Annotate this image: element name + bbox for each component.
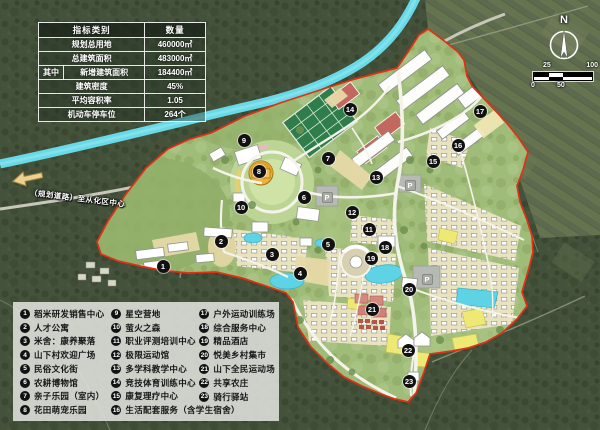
scale-label-50: 50 xyxy=(557,82,565,89)
map-marker-16[interactable]: 16 xyxy=(452,139,465,152)
legend-number-badge: 12 xyxy=(111,350,121,360)
legend-item-20: 20悦美乡村集市 xyxy=(199,348,275,362)
compass-rose-icon xyxy=(538,26,590,66)
scale-bar: 25 100 0 50 xyxy=(531,62,595,94)
legend-item-18: 18综合服务中心 xyxy=(199,321,275,335)
legend-item-6: 6农耕博物馆 xyxy=(20,376,111,390)
compass-north-label: N xyxy=(538,14,590,26)
legend-label: 职业评测培训中心 xyxy=(125,335,195,347)
map-marker-18[interactable]: 18 xyxy=(379,241,392,254)
stats-header-quantity: 数量 xyxy=(145,23,206,38)
stats-value: 1.05 xyxy=(145,94,206,108)
legend-item-23: 23骑行驿站 xyxy=(199,390,275,404)
stats-value: 483000㎡ xyxy=(145,52,206,66)
map-marker-19[interactable]: 19 xyxy=(365,252,378,265)
stats-table: 指标类别 数量 规划总用地 460000㎡ 总建筑面积 483000㎡ 其中 新… xyxy=(38,22,206,122)
legend-label: 民俗文化街 xyxy=(34,363,78,375)
legend-number-badge: 13 xyxy=(111,364,121,374)
legend-number-badge: 20 xyxy=(199,350,209,360)
scale-label-25: 25 xyxy=(543,62,551,69)
legend-number-badge: 22 xyxy=(199,378,209,388)
legend-number-badge: 18 xyxy=(199,323,209,333)
legend-label: 山下全民运动场 xyxy=(213,363,275,375)
stats-prefix: 其中 xyxy=(39,66,64,80)
map-marker-11[interactable]: 11 xyxy=(363,223,376,236)
legend-label: 户外运动训练场 xyxy=(213,308,275,320)
legend-label: 亲子乐园（室内） xyxy=(34,390,104,402)
legend-number-badge: 21 xyxy=(199,364,209,374)
legend-item-13: 13多学科教学中心 xyxy=(111,362,199,376)
legend-column: 9星空营地10萤火之森11职业评测培训中心12极限运动馆13多学科教学中心14竞… xyxy=(111,307,199,417)
legend-label: 农耕博物馆 xyxy=(34,377,78,389)
legend-number-badge: 9 xyxy=(111,309,121,319)
legend-label: 稻米研发销售中心 xyxy=(34,308,104,320)
stats-value: 184400㎡ xyxy=(145,66,206,80)
stats-value: 45% xyxy=(145,80,206,94)
legend-item-9: 9星空营地 xyxy=(111,307,199,321)
legend-label: 米舍：康养聚落 xyxy=(34,335,96,347)
legend-number-badge: 8 xyxy=(20,405,30,415)
stats-row: 规划总用地 460000㎡ xyxy=(39,38,206,52)
legend-number-badge: 6 xyxy=(20,378,30,388)
legend-number-badge: 3 xyxy=(20,336,30,346)
legend-number-badge: 11 xyxy=(111,336,121,346)
map-marker-3[interactable]: 3 xyxy=(266,248,279,261)
map-marker-5[interactable]: 5 xyxy=(322,238,335,251)
legend-item-15: 15康复理疗中心 xyxy=(111,390,199,404)
scale-label-0: 0 xyxy=(531,82,535,89)
legend-item-11: 11职业评测培训中心 xyxy=(111,335,199,349)
legend-number-badge: 1 xyxy=(20,309,30,319)
parking-marker-3[interactable]: P xyxy=(422,274,433,285)
legend-item-16: 16生活配套服务（含学生宿舍） xyxy=(111,403,199,417)
legend-label: 多学科教学中心 xyxy=(125,363,187,375)
legend-label: 综合服务中心 xyxy=(213,322,266,334)
legend-item-4: 4山下村欢迎广场 xyxy=(20,348,111,362)
legend-label: 花田萌宠乐园 xyxy=(34,404,87,416)
legend-label: 山下村欢迎广场 xyxy=(34,349,96,361)
stats-label: 机动车停车位 xyxy=(39,108,145,122)
legend-label: 极限运动馆 xyxy=(125,349,169,361)
stats-row: 建筑密度 45% xyxy=(39,80,206,94)
legend-number-badge: 15 xyxy=(111,391,121,401)
legend-number-badge: 16 xyxy=(111,405,121,415)
stats-header-row: 指标类别 数量 xyxy=(39,23,206,38)
legend-label: 康复理疗中心 xyxy=(125,390,178,402)
site-plan-map: 1234567891011121314151617181920212223PPP… xyxy=(0,0,600,430)
stats-header-category: 指标类别 xyxy=(39,23,145,38)
stats-row: 机动车停车位 264个 xyxy=(39,108,206,122)
legend-number-badge: 4 xyxy=(20,350,30,360)
legend-number-badge: 2 xyxy=(20,323,30,333)
map-marker-1[interactable]: 1 xyxy=(157,260,170,273)
map-marker-21[interactable]: 21 xyxy=(366,303,379,316)
stats-label: 总建筑面积 xyxy=(39,52,145,66)
map-marker-23[interactable]: 23 xyxy=(403,375,416,388)
map-marker-7[interactable]: 7 xyxy=(322,152,335,165)
legend-label: 精品酒店 xyxy=(213,335,248,347)
map-marker-9[interactable]: 9 xyxy=(238,134,251,147)
legend-item-21: 21山下全民运动场 xyxy=(199,362,275,376)
legend-number-badge: 19 xyxy=(199,336,209,346)
legend-label: 共享农庄 xyxy=(213,377,248,389)
legend-label: 骑行驿站 xyxy=(213,391,248,403)
legend-label: 星空营地 xyxy=(125,308,160,320)
map-marker-17[interactable]: 17 xyxy=(474,105,487,118)
map-marker-12[interactable]: 12 xyxy=(346,206,359,219)
legend-column: 1稻米研发销售中心2人才公寓3米舍：康养聚落4山下村欢迎广场5民俗文化街6农耕博… xyxy=(20,307,111,417)
parking-marker-1[interactable]: P xyxy=(322,192,333,203)
map-marker-4[interactable]: 4 xyxy=(294,267,307,280)
legend-item-22: 22共享农庄 xyxy=(199,376,275,390)
legend-item-19: 19精品酒店 xyxy=(199,335,275,349)
stats-value: 460000㎡ xyxy=(145,38,206,52)
map-marker-8[interactable]: 8 xyxy=(253,165,266,178)
scale-bar-graphic xyxy=(533,72,593,81)
stats-row: 平均容积率 1.05 xyxy=(39,94,206,108)
legend-column: 17户外运动训练场18综合服务中心19精品酒店20悦美乡村集市21山下全民运动场… xyxy=(199,307,275,417)
legend-item-5: 5民俗文化街 xyxy=(20,362,111,376)
legend-label: 人才公寓 xyxy=(34,322,69,334)
scale-label-100: 100 xyxy=(586,62,598,69)
map-marker-6[interactable]: 6 xyxy=(298,191,311,204)
legend-item-7: 7亲子乐园（室内） xyxy=(20,390,111,404)
legend-number-badge: 23 xyxy=(199,392,209,402)
legend-number-badge: 17 xyxy=(199,309,209,319)
map-marker-10[interactable]: 10 xyxy=(235,201,248,214)
legend-item-10: 10萤火之森 xyxy=(111,321,199,335)
map-marker-15[interactable]: 15 xyxy=(427,155,440,168)
map-marker-2[interactable]: 2 xyxy=(215,235,228,248)
legend-item-12: 12极限运动馆 xyxy=(111,348,199,362)
legend-item-2: 2人才公寓 xyxy=(20,321,111,335)
legend-panel: 1稻米研发销售中心2人才公寓3米舍：康养聚落4山下村欢迎广场5民俗文化街6农耕博… xyxy=(13,302,279,421)
legend-number-badge: 5 xyxy=(20,364,30,374)
stats-value: 264个 xyxy=(145,108,206,122)
stats-label: 平均容积率 xyxy=(39,94,145,108)
legend-number-badge: 7 xyxy=(20,391,30,401)
map-marker-14[interactable]: 14 xyxy=(344,103,357,116)
stats-label: 规划总用地 xyxy=(39,38,145,52)
stats-row: 总建筑面积 483000㎡ xyxy=(39,52,206,66)
legend-label: 萤火之森 xyxy=(125,322,160,334)
stats-row: 其中 新增建筑面积 184400㎡ xyxy=(39,66,206,80)
legend-item-8: 8花田萌宠乐园 xyxy=(20,403,111,417)
legend-number-badge: 14 xyxy=(111,378,121,388)
legend-item-17: 17户外运动训练场 xyxy=(199,307,275,321)
parking-marker-2[interactable]: P xyxy=(405,180,416,191)
legend-item-14: 14竞技体育训练中心 xyxy=(111,376,199,390)
map-marker-22[interactable]: 22 xyxy=(402,344,415,357)
legend-item-1: 1稻米研发销售中心 xyxy=(20,307,111,321)
map-marker-13[interactable]: 13 xyxy=(370,171,383,184)
map-marker-20[interactable]: 20 xyxy=(403,283,416,296)
stats-label: 新增建筑面积 xyxy=(64,66,145,80)
legend-item-3: 3米舍：康养聚落 xyxy=(20,335,111,349)
legend-label: 悦美乡村集市 xyxy=(213,349,266,361)
legend-number-badge: 10 xyxy=(111,323,121,333)
legend-label: 竞技体育训练中心 xyxy=(125,377,195,389)
stats-label: 建筑密度 xyxy=(39,80,145,94)
